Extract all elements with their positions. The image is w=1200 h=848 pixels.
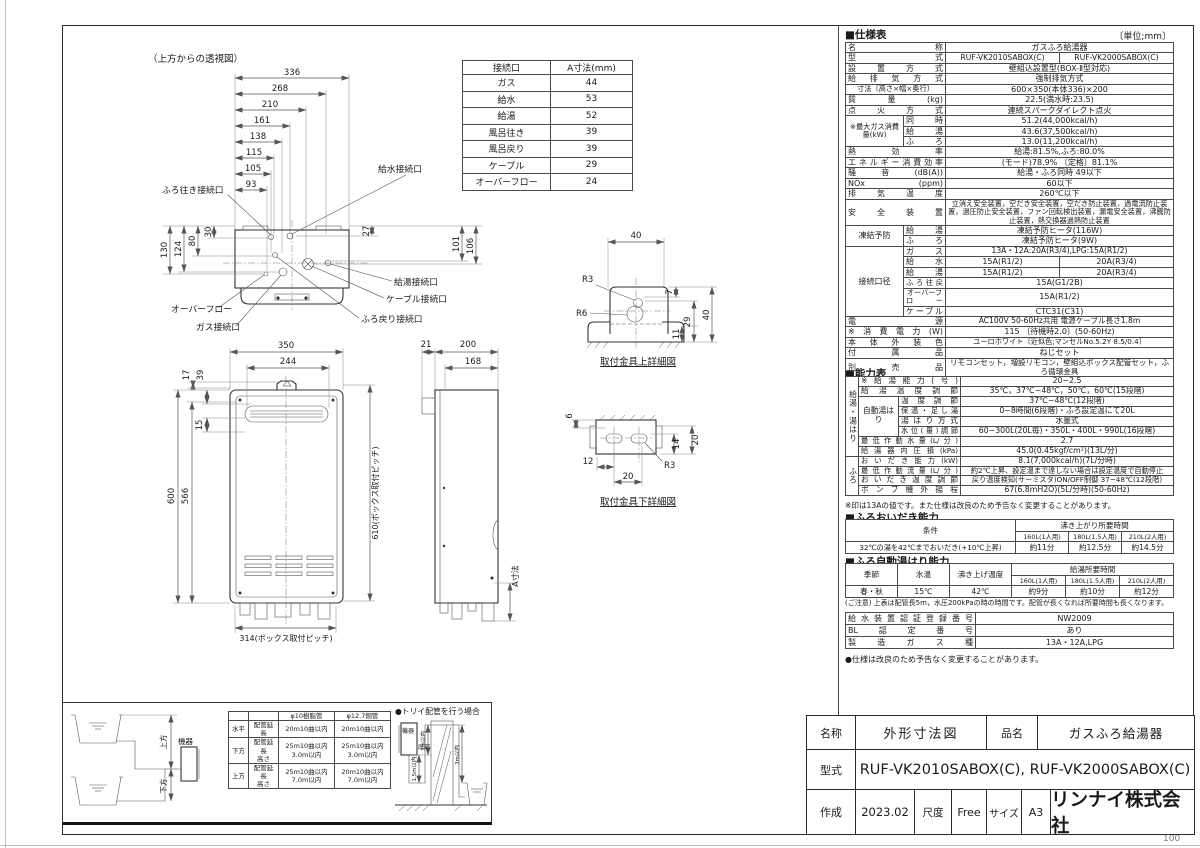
capacity-group: ふろ	[846, 456, 859, 495]
spec-label: 設置方式	[846, 63, 946, 73]
autofill-size: 180L(1.5人用)	[1066, 576, 1120, 586]
upper-bracket-caption: 取付金具上詳細図	[600, 356, 676, 368]
spec-label: 寸法〔高さ×幅×奥行〕	[846, 84, 946, 94]
dim-17: 17	[182, 370, 192, 381]
creation-date: 2023.02	[856, 790, 915, 834]
conn-cell: 53	[551, 91, 633, 108]
conn-cell: 給水	[463, 91, 551, 108]
device-label: 機器	[402, 727, 414, 735]
scale-label: 尺度	[915, 790, 952, 834]
spec-value: 20A(R3/4)	[1060, 257, 1174, 267]
kyusui-label: 給水接続口	[378, 163, 422, 175]
pipe-cell: 20m10曲以内	[279, 721, 335, 738]
dim-610-box-pitch: 610(ボックス取付ピッチ)	[370, 446, 380, 539]
spec-label: 熱効率	[846, 147, 946, 157]
pipe-cell: 25m10曲以内 3.0m以内	[335, 738, 391, 763]
autofill-value: 約9分	[1012, 586, 1066, 598]
autofill-value: 約12分	[1120, 586, 1174, 598]
dim-a-sunpo: A寸法	[510, 565, 520, 586]
pipe-lower	[117, 769, 165, 801]
spec-table-title: ■仕様表	[845, 27, 886, 42]
hatch-marks	[600, 415, 655, 420]
spec-value: 15A(R1/2)	[946, 288, 1174, 306]
capacity-label: 最低作動流量(L/分)	[859, 466, 961, 475]
spec-label: 給排気方式	[846, 74, 946, 84]
cert-value: あり	[976, 625, 1174, 637]
dim-3m-left: 3m以内	[419, 731, 427, 751]
capacity-value: 水量式	[961, 416, 1174, 426]
spec-label: 騒音(dB(A))	[846, 168, 946, 178]
spec-value: 壁組込設置型(BOX-Ⅱ型対応)	[946, 63, 1174, 73]
spec-value: 115 〔待機時2.0〕(50-60Hz)	[946, 327, 1174, 337]
side-bottom-fittings	[440, 603, 494, 621]
spec-label: 付属品	[846, 348, 946, 358]
dim-101: 101	[452, 236, 462, 252]
dim-106: 106	[466, 238, 476, 254]
product-name: ガスふろ給湯器	[1038, 716, 1194, 749]
paper-edge-left	[5, 0, 6, 848]
autofill-time-header: 給湯所要時間	[1012, 564, 1174, 576]
table-row: オーバーフロー24	[463, 174, 633, 191]
zone-divider	[838, 25, 839, 715]
table-row: 水平配管延長 20m10曲以内20m10曲以内	[229, 721, 391, 738]
capacity-label: 給湯温度調節	[859, 386, 961, 396]
reheat-size: 180L(1.5人用)	[1069, 532, 1122, 542]
dim-105: 105	[245, 164, 261, 174]
pipe-cell: 25m10曲以内 3.0m以内	[279, 738, 335, 763]
capacity-value: 35℃，37℃~48℃，50℃，60℃(15段階)	[961, 386, 1174, 396]
spec-value: 43.6(37,500kcal/h)	[946, 126, 1174, 136]
pipe-header-resin: φ10樹脂管	[279, 712, 335, 721]
spec-change-note: ●仕様は改良のため予告なく変更することがあります。	[845, 654, 1043, 665]
pipe-cell: 20m10曲以内	[335, 721, 391, 738]
model-numbers: RUF-VK2010SABOX(C), RUF-VK2000SABOX(C)	[856, 750, 1194, 789]
front-side-view-drawing: 350 244 17 39 15 600 566 610(ボックス取付ピッチ) …	[90, 328, 560, 668]
capacity-value: 0~8時間(6段階)・ふろ設定温にて20L	[961, 406, 1174, 416]
capacity-value: 約2℃上昇、設定温まで達しない場合は設定温度で自動停止	[961, 466, 1174, 475]
capacity-value: 戻り温度検知(サーミスタ)ON/OFF制御 37~48℃(12段階)	[961, 475, 1174, 485]
cert-value: 13A・12A,LPG	[976, 637, 1174, 649]
dim-27: 27	[362, 226, 372, 237]
dim-bracket-40w: 40	[631, 231, 642, 241]
conn-header-dim: A寸法(mm)	[551, 61, 633, 75]
table-row: 下方配管延長 高さ 25m10曲以内 3.0m以内25m10曲以内 3.0m以内	[229, 738, 391, 763]
spec-label: 質量(kg)	[846, 95, 946, 105]
spec-sublabel: 給湯	[904, 226, 946, 236]
capacity-value: 45.0(0.45kgf/cm²)(13L/分)	[961, 446, 1174, 456]
spec-value: 13.0(11,200kcal/h)	[946, 136, 1174, 146]
overflow-port	[264, 272, 268, 276]
reheat-value: 約14.5分	[1122, 542, 1174, 554]
capacity-label: ポンプ機外揚程	[859, 485, 961, 495]
spec-sublabel: ふろ	[904, 236, 946, 246]
table-row: 上方配管延長 高さ 25m10曲以内 7.0m以内20m10曲以内 7.0m以内	[229, 763, 391, 788]
spec-label: 型式	[846, 53, 946, 63]
conn-cell: オーバーフロー	[463, 174, 551, 191]
dim-80: 80	[188, 236, 198, 247]
capacity-label: 保温・足し湯	[899, 406, 961, 416]
piping-elevation-diagram: 機器 上方 下方	[65, 705, 225, 817]
spec-value: 強制排気方式	[946, 74, 1174, 84]
spec-sublabel: ケーブル	[904, 306, 946, 316]
conn-cell: 24	[551, 174, 633, 191]
cable-label: ケーブル接続口	[386, 293, 447, 305]
lower-bathtub	[71, 777, 123, 805]
bottom-fittings	[240, 603, 330, 619]
upper-bathtub	[71, 715, 123, 743]
spec-value: (モード)78.9% 〔定格〕81.1%	[946, 157, 1174, 167]
table-row: ケーブル29	[463, 157, 633, 174]
autofill-value: 15℃	[898, 586, 950, 598]
dim-115: 115	[246, 148, 262, 158]
conn-cell: 風呂戻り	[463, 141, 551, 158]
titleblock-model-label: 型式	[807, 750, 856, 789]
overflow-label: オーバーフロー	[171, 304, 232, 315]
spec-value: 連続スパークダイレクト点火	[946, 105, 1174, 115]
hatch-marks	[587, 342, 680, 348]
unit-note: 〔単位;mm〕	[1114, 29, 1171, 42]
title-block: 名称 外形寸法図 品名 ガスふろ給湯器 型式 RUF-VK2010SABOX(C…	[806, 715, 1195, 835]
capacity-label: 最低作動水量(L/分)	[859, 436, 961, 446]
autofill-size: 210L(2人用)	[1120, 576, 1174, 586]
pipe-header-copper: φ12.7銅管	[335, 712, 391, 721]
capacity-value: 8.1(7,000kcal/h)(7L/分時)	[961, 456, 1174, 466]
dim-bracket-29: 29	[683, 317, 693, 328]
dim-200: 200	[460, 340, 476, 350]
front-view-dims	[173, 348, 375, 633]
dim-bracket-6: 6	[565, 413, 575, 418]
dim-bracket-20r: 20	[691, 435, 701, 446]
dim-168: 168	[465, 357, 481, 367]
spec-label: 接続口径	[846, 246, 904, 316]
size-label: サイズ	[987, 790, 1022, 834]
table-row: ガス44	[463, 75, 633, 92]
spec-label: NOx (ppm)	[846, 178, 946, 188]
dim-bracket-11: 11	[672, 329, 682, 340]
dim-600: 600	[167, 488, 177, 504]
spec-label: 凍結予防	[846, 226, 904, 247]
furo-modori-port	[273, 253, 278, 258]
spec-value: リモコンセット，増設リモコン，壁組込ボックス配管セット，ふろ循環金具	[946, 358, 1174, 377]
table-row: 給水53	[463, 91, 633, 108]
dim-350: 350	[278, 341, 294, 351]
ground-hatch	[399, 805, 483, 811]
dim-314-box-pitch: 314(ボックス取付ピッチ)	[239, 633, 332, 643]
spec-value: 260℃以下	[946, 189, 1174, 199]
spec-value: 15A(R1/2)	[946, 257, 1060, 267]
spec-label: エネルギー消費効率	[846, 157, 946, 167]
gas-port	[279, 268, 287, 276]
cert-label: 給水装置認証登録番号	[846, 613, 976, 625]
pipe-cell: 配管延長 高さ	[249, 738, 279, 763]
certification-table: 給水装置認証登録番号NW2009 BL認定番号あり 製造ガス種13A・12A,L…	[845, 612, 1174, 649]
paper-edge-bottom	[0, 845, 1200, 846]
pipe-cell: 下方	[229, 738, 249, 763]
device-label: 機器	[178, 736, 193, 746]
front-view-body	[230, 376, 343, 624]
reheat-time-header: 沸き上がり所要時間	[1016, 520, 1174, 532]
titleblock-date-label: 作成	[807, 790, 856, 834]
pipe-header-blank	[249, 712, 279, 721]
spec-value: 13A・12A:20A(R3/4),LPG:15A(R1/2)	[946, 246, 1174, 256]
spec-value: RUF-VK2000SABOX(C)	[1060, 53, 1174, 63]
autofill-note: (ご注意) 上表は配管長5m，水圧200kPaの時の時間です。配管が長くなれば所…	[845, 598, 1168, 608]
scale-value: Free	[952, 790, 987, 834]
spec-value: 15A(G1/2B)	[946, 278, 1174, 288]
lower-bracket-caption: 取付金具下詳細図	[600, 496, 676, 508]
cert-label: 製造ガス種	[846, 637, 976, 649]
autofill-season-header: 季節	[846, 564, 898, 586]
dim-bracket-40h: 40	[702, 310, 712, 321]
capacity-value: 37℃~48℃(12段階)	[961, 396, 1174, 406]
capacity-value: 67(6.8mH2O)(5L/分時)(50-60Hz)	[961, 485, 1174, 495]
downward-label: 下方	[158, 778, 168, 793]
spec-label: 点火方式	[846, 105, 946, 115]
dim-1-5m: 1.5m以内	[410, 756, 418, 781]
furo-iki-label: ふろ往き接続口	[162, 184, 224, 196]
furo-modori-label: ふろ戻り接続口	[361, 313, 423, 325]
size-value: A3	[1022, 790, 1051, 834]
bathtub	[463, 783, 487, 805]
capacity-value: 2.7	[961, 436, 1174, 446]
capacity-label: 給湯器内圧損(kPa)	[859, 446, 961, 456]
top-view-title: （上方からの透視図）	[148, 53, 243, 65]
torii-piping-diagram: 機器 底部 1.5m以内 3m以内 3m以内	[395, 717, 487, 819]
pipe-cell: 上方	[229, 763, 249, 788]
top-view-body	[223, 220, 368, 310]
spec-value: 15A(R1/2)	[946, 267, 1060, 277]
spec-label: ※消費電力(W)	[846, 327, 946, 337]
louvers	[245, 556, 333, 576]
table-row: 風呂戻り39	[463, 141, 633, 158]
table-row: 給湯52	[463, 108, 633, 125]
conn-cell: 風呂往き	[463, 124, 551, 141]
titleblock-name-label: 名称	[807, 716, 856, 749]
dim-3m-right: 3m以内	[453, 745, 461, 765]
side-view-dims	[422, 348, 516, 621]
spec-value: 給湯・ふろ同時 49以下	[946, 168, 1174, 178]
torii-piping-title: ●トリイ配管を行う場合	[395, 706, 480, 717]
dim-bracket-20b: 20	[623, 472, 634, 482]
table-row: 風呂往き39	[463, 124, 633, 141]
spec-value: 51.2(44,000kcal/h)	[946, 116, 1174, 126]
conn-cell: 給湯	[463, 108, 551, 125]
dim-130: 130	[160, 242, 170, 258]
reheat-value: 約11分	[1016, 542, 1069, 554]
capacity-value: 60~300L(20L毎)・350L・400L・990L(16段階)	[961, 426, 1174, 436]
spec-label: 電源	[846, 317, 946, 327]
reheat-table: 条件沸き上がり所要時間 160L(1人用)180L(1.5人用)210L(2人用…	[845, 519, 1174, 554]
spec-label: 名称	[846, 43, 946, 53]
spec-value: 60以下	[946, 178, 1174, 188]
reheat-cond-value: 32℃の湯を42℃までおいだき(+10℃上昇)	[846, 542, 1016, 554]
dim-15: 15	[195, 420, 205, 431]
pipe-cell: 配管延長	[249, 721, 279, 738]
spec-sublabel: 給湯	[904, 126, 946, 136]
bracket-detail-drawings: 40 R3 R6 7 29 11 40 取付金具上詳細図	[552, 212, 822, 532]
spec-label: 本体外装色	[846, 337, 946, 347]
capacity-label: 湯はり方式	[899, 416, 961, 426]
cert-label: BL認定番号	[846, 625, 976, 637]
piping-length-table: φ10樹脂管 φ12.7銅管 水平配管延長 20m10曲以内20m10曲以内 下…	[228, 711, 391, 789]
pipe-header-blank	[229, 712, 249, 721]
spec-label: 排気温度	[846, 189, 946, 199]
spec-sublabel: ふろ	[904, 136, 946, 146]
dim-21: 21	[421, 340, 432, 350]
company-name: リンナイ株式会社	[1051, 790, 1194, 834]
spec-sublabel: ふろ往戻	[904, 278, 946, 288]
pipe-cell: 20m10曲以内 7.0m以内	[335, 763, 391, 788]
capacity-group: 給湯・湯はり	[846, 377, 859, 457]
spec-value: ガスふろ給湯器	[946, 43, 1174, 53]
dim-124: 124	[174, 241, 184, 257]
spec-sublabel: 給水	[904, 257, 946, 267]
pipe-cell: 25m10曲以内 7.0m以内	[279, 763, 335, 788]
sheet-corner-number: 100	[1163, 834, 1180, 844]
side-view-body	[422, 390, 498, 621]
label-r6: R6	[576, 309, 587, 319]
spec-sublabel: オーバーフロー	[904, 288, 946, 306]
autofill-value: 約10分	[1066, 586, 1120, 598]
connection-dimension-table: 接続口A寸法(mm) ガス44 給水53 給湯52 風呂往き39 風呂戻り39 …	[462, 60, 633, 191]
autofill-temp-header: 水温	[898, 564, 950, 586]
autofill-value: 春・秋	[846, 586, 898, 598]
spec-value: 600×350(本体336)×200	[946, 84, 1174, 94]
dim-bracket-12: 12	[583, 457, 594, 467]
drawing-name: 外形寸法図	[856, 716, 987, 749]
spec-label: ※最大ガス消費量(kW)	[846, 116, 904, 147]
spec-value: RUF-VK2010SABOX(C)	[946, 53, 1060, 63]
cert-value: NW2009	[976, 613, 1174, 625]
upper-bracket	[587, 238, 717, 350]
conn-cell: 52	[551, 108, 633, 125]
dim-bracket-14: 14	[672, 439, 682, 450]
heater-unit	[181, 747, 197, 781]
torii-wall	[431, 721, 453, 805]
spec-value: 凍結予防ヒータ(116W)	[946, 226, 1174, 236]
spec-value: CTC31(C31)	[946, 306, 1174, 316]
spec-sublabel: 給湯	[904, 267, 946, 277]
pipe-cell: 配管延長 高さ	[249, 763, 279, 788]
conn-cell: 29	[551, 157, 633, 174]
spec-value: 22.5(満水時:23.5)	[946, 95, 1174, 105]
label-r3: R3	[582, 275, 593, 285]
capacity-label: 温度調節	[899, 396, 961, 406]
spec-value: ユーロホワイト〔近似色;マンセルNo.5.2Y 8.5/0.4〕	[946, 337, 1174, 347]
upward-label: 上方	[158, 734, 168, 749]
dim-39: 39	[196, 370, 206, 381]
spec-value: AC100V 50-60Hz共用 電源ケーブル長さ1.8m	[946, 317, 1174, 327]
dim-244: 244	[280, 357, 296, 367]
capacity-label: おいだき能力(kW)	[859, 456, 961, 466]
dim-566: 566	[181, 488, 191, 504]
dim-268: 268	[272, 84, 288, 94]
conn-cell: 44	[551, 75, 633, 92]
capacity-label: 水位(量)調節	[899, 426, 961, 436]
dim-210: 210	[262, 100, 278, 110]
reheat-size: 210L(2人用)	[1122, 532, 1174, 542]
piping-diagram-box: 機器 上方 下方 φ10樹脂管 φ12.7銅管 水平配管延長 20m10曲以内2…	[62, 702, 492, 825]
top-view-ports	[264, 233, 331, 276]
autofill-table: 季節水温沸き上げ温度給湯所要時間 160L(1人用)180L(1.5人用)210…	[845, 563, 1174, 598]
capacity-sublabel: 自動湯はり	[859, 396, 899, 436]
spec-label: 安全装置	[846, 199, 946, 225]
conn-cell: ガス	[463, 75, 551, 92]
spec-value: 20A(R3/4)	[1060, 267, 1174, 277]
kyuto-label: 給湯接続口	[394, 276, 438, 288]
pipe-upper	[117, 741, 181, 769]
dim-bracket-7: 7	[665, 289, 675, 294]
spec-value: 給湯:81.5%,ふろ:80.0%	[946, 147, 1174, 157]
spec-value: 凍結予防ヒータ(9W)	[946, 236, 1174, 246]
titleblock-item-label: 品名	[987, 716, 1038, 749]
spec-table: 名称ガスふろ給湯器 型式RUF-VK2010SABOX(C)RUF-VK2000…	[845, 42, 1174, 378]
specification-column: ■仕様表 〔単位;mm〕 名称ガスふろ給湯器 型式RUF-VK2010SABOX…	[845, 25, 1173, 833]
autofill-size: 160L(1人用)	[1012, 576, 1066, 586]
capacity-label: おいだき温度調節	[859, 475, 961, 485]
reheat-cond-header: 条件	[846, 520, 1016, 542]
pipe-cell: 水平	[229, 721, 249, 738]
top-view-drawing: （上方からの透視図） 336 268 210 161 138 115 105 9…	[78, 48, 488, 348]
autofill-value: 42℃	[950, 586, 1012, 598]
dim-30: 30	[204, 227, 214, 238]
lower-bracket	[572, 415, 696, 486]
dim-93: 93	[246, 180, 257, 190]
conn-cell: 39	[551, 124, 633, 141]
conn-cell: ケーブル	[463, 157, 551, 174]
capacity-value: 20~2.5	[961, 377, 1174, 387]
reheat-value: 約12.5分	[1069, 542, 1122, 554]
reheat-size: 160L(1人用)	[1016, 532, 1069, 542]
spec-sublabel: 同時	[904, 116, 946, 126]
capacity-table: 給湯・湯はり※給湯能力(号)20~2.5 給湯温度調節35℃，37℃~48℃，5…	[845, 376, 1174, 496]
spec-value: ねじセット	[946, 348, 1174, 358]
dim-336: 336	[284, 68, 300, 78]
spec-sublabel: ガス	[904, 246, 946, 256]
label-r3-lower: R3	[664, 461, 675, 471]
dim-138: 138	[250, 132, 266, 142]
spec-value: 立消え安全装置，空だき安全装置，空だき防止装置，過電流防止装置，過圧防止安全装置…	[946, 199, 1174, 225]
conn-header-port: 接続口	[463, 61, 551, 75]
dim-161: 161	[254, 116, 270, 126]
autofill-target-header: 沸き上げ温度	[950, 564, 1012, 586]
conn-cell: 39	[551, 141, 633, 158]
capacity-label: ※給湯能力(号)	[859, 377, 961, 387]
drawing-sheet: （上方からの透視図） 336 268 210 161 138 115 105 9…	[0, 0, 1200, 848]
